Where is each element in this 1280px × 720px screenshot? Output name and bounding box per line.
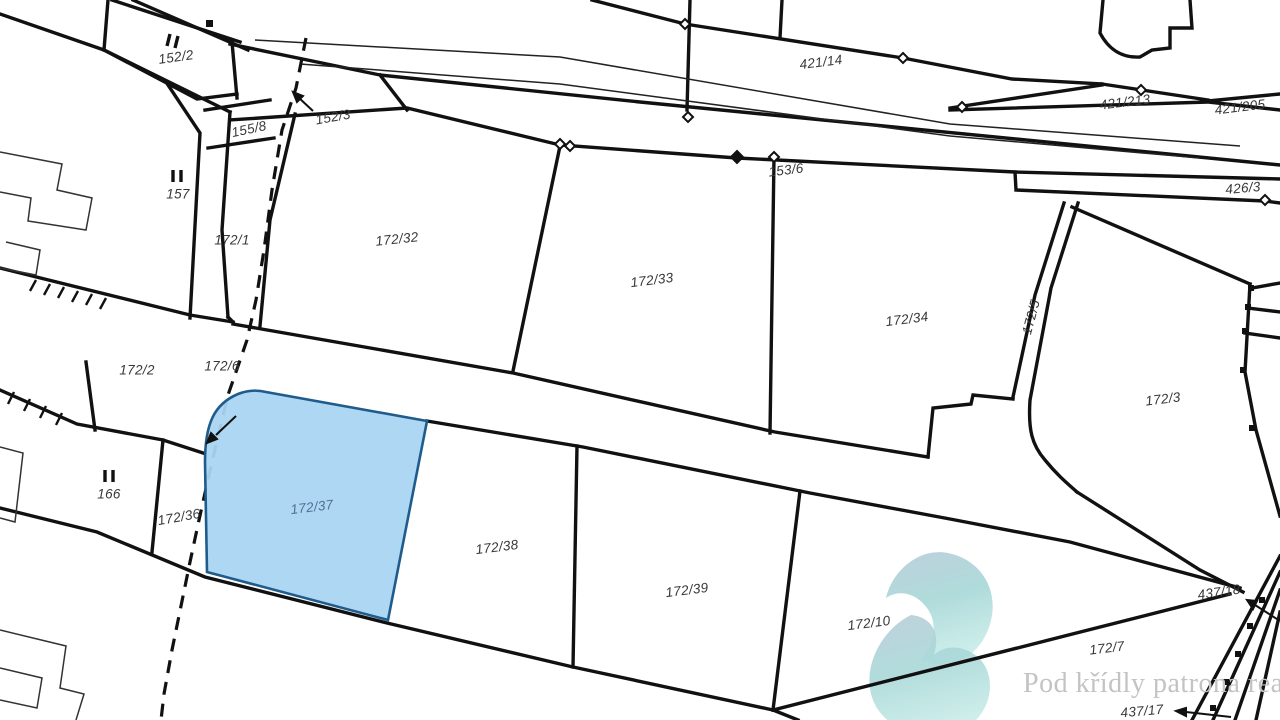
parcel-boundaries xyxy=(0,0,1280,720)
cadastral-map: 152/2155/8152/3157421/14153/6421/213421/… xyxy=(0,0,1280,720)
dashed-boundary-line xyxy=(161,38,306,720)
land-use-symbols xyxy=(105,34,181,482)
survey-point-markers xyxy=(1210,285,1265,711)
road-centerlines xyxy=(255,40,1240,158)
watermark-text: Pod křídly patrona reality xyxy=(1023,668,1280,700)
map-linework xyxy=(0,0,1280,720)
building-outlines xyxy=(0,152,92,720)
